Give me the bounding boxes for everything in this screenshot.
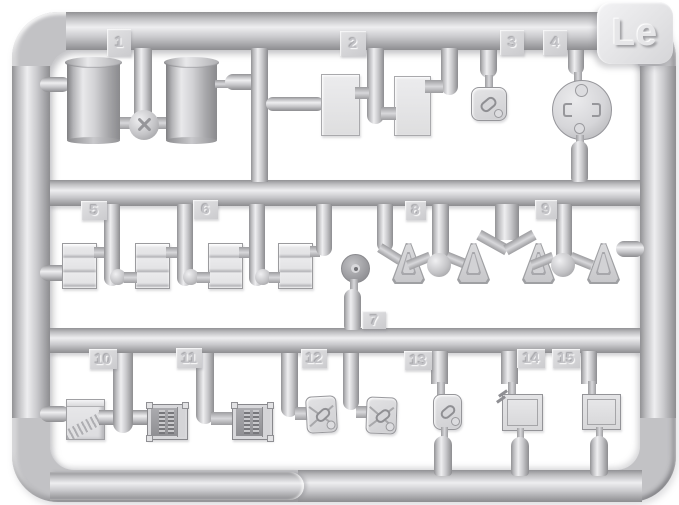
part-3-latched-box	[471, 87, 507, 121]
jerry-cap	[326, 420, 335, 429]
sprue-stub	[197, 272, 210, 283]
sprue-runner	[495, 204, 519, 240]
corner-nub	[267, 435, 274, 442]
part-tag-6: 6	[193, 200, 218, 219]
sprue-runner	[343, 353, 359, 410]
part-tag-12: 12	[301, 349, 327, 368]
part-12-jerry-can-right	[365, 396, 397, 434]
sprue-runner	[501, 351, 518, 384]
sprue-runner	[441, 48, 458, 95]
radio-ribs	[159, 410, 165, 434]
sprue-letter-tab: Le	[597, 2, 673, 64]
sprue-runner	[344, 289, 361, 330]
sprue-runner	[511, 437, 529, 476]
part-tag-1: 1	[107, 29, 131, 56]
hatch-bolt	[575, 84, 588, 97]
part-tag-15: 15	[552, 349, 580, 368]
part-5-crate-2	[135, 243, 170, 289]
drum-rim	[164, 57, 219, 68]
radio-ribs	[253, 410, 259, 434]
radio-side-band	[262, 407, 270, 437]
sprue-runner	[480, 50, 497, 78]
part-tag-13: 13	[404, 351, 432, 370]
corner-nub	[267, 402, 274, 409]
sprue-runner	[431, 351, 448, 384]
sprue-runner	[581, 351, 597, 384]
sprue-frame-left-bar	[12, 66, 50, 418]
sprue-stub	[588, 381, 596, 395]
part-tag-4: 4	[543, 30, 567, 55]
sprue-stub	[425, 80, 443, 93]
sprue-ball-joint	[551, 253, 575, 277]
part-tag-3: 3	[500, 30, 524, 55]
part-tag-2: 2	[340, 31, 366, 56]
sprue-ball-joint	[129, 110, 159, 140]
sprue-runner	[251, 48, 268, 182]
part-5-crate-1	[62, 243, 97, 289]
part-1-drum-left	[67, 62, 120, 141]
sprue-stub	[124, 272, 137, 283]
part-tag-11: 11	[176, 348, 202, 368]
part-4-hatch-disc	[552, 80, 612, 140]
part-14-hatch-panel	[502, 394, 543, 431]
part-13-latched-box	[433, 394, 462, 430]
hatch-bolt	[574, 123, 585, 134]
part-tag-9: 9	[535, 200, 557, 219]
sprue-stub	[266, 97, 324, 111]
sprue-runner	[590, 436, 608, 476]
part-12-jerry-can-left	[305, 395, 338, 434]
part-tag-10: 10	[89, 349, 117, 369]
sprue-frame-top-bar	[66, 12, 610, 50]
sprue-ball-joint	[427, 253, 451, 277]
part-tag-8: 8	[405, 201, 426, 220]
part-tag-5: 5	[81, 201, 107, 220]
corner-nub	[146, 435, 153, 442]
sprue-stub	[381, 107, 396, 120]
part-tag-14: 14	[517, 349, 545, 368]
part-15-hatch-panel	[582, 394, 621, 430]
part-tag-7: 7	[362, 311, 386, 329]
cap-detail	[494, 109, 503, 118]
corner-nub	[182, 402, 189, 409]
drum-base	[166, 137, 217, 144]
sprue-stub	[616, 241, 644, 257]
sprue-frame-right-bar	[640, 66, 676, 418]
sprue-stub	[269, 272, 280, 283]
sprue-runner	[434, 436, 452, 476]
sprue-runner	[571, 141, 588, 182]
part-2-panel-left	[321, 74, 360, 136]
cap-detail	[451, 417, 460, 426]
sprue-frame-bottom-bar-left-segment	[50, 472, 304, 500]
corner-nub	[146, 402, 153, 409]
sprue-stub	[40, 77, 70, 92]
hatch-handle	[592, 103, 601, 117]
corner-nub	[231, 402, 238, 409]
part-6-crate-2	[278, 243, 313, 289]
radio-side-band	[177, 407, 185, 437]
radio-ribs	[244, 410, 250, 434]
radio-ribs	[168, 410, 174, 434]
drum-base	[67, 137, 120, 144]
part-11-radio-right	[232, 404, 273, 440]
sprue-runner	[316, 204, 332, 256]
jerry-cap	[385, 422, 394, 431]
drum-rim	[65, 57, 122, 68]
hatch-handle	[563, 103, 572, 117]
part-11-radio-left	[147, 404, 188, 440]
panel-inner-frame	[507, 399, 538, 426]
hub-dot	[354, 267, 358, 271]
sprue-diagram: 1 2 3 4 5 6 7 8 9 10 11 12 13 14 15 Le	[0, 0, 679, 505]
box-top-face	[67, 400, 104, 407]
part-6-crate-1	[208, 243, 243, 289]
part-1-drum-right	[166, 62, 217, 141]
sprue-stub	[355, 87, 369, 99]
panel-inner-frame	[587, 399, 616, 425]
